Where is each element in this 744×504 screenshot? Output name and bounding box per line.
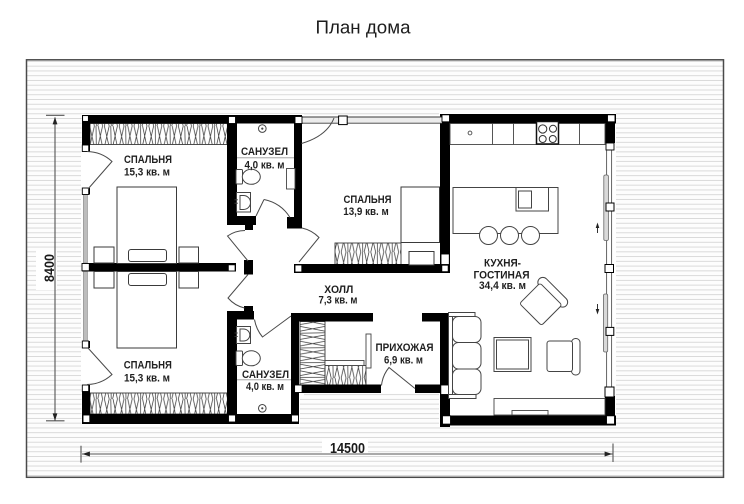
svg-text:8400: 8400 <box>41 254 57 282</box>
svg-text:13,9 кв. м: 13,9 кв. м <box>343 206 389 218</box>
svg-text:4,0 кв. м: 4,0 кв. м <box>246 381 284 393</box>
svg-text:4,0 кв. м: 4,0 кв. м <box>245 159 285 171</box>
svg-text:15,3 кв. м: 15,3 кв. м <box>124 167 170 179</box>
svg-text:34,4 кв. м: 34,4 кв. м <box>479 280 526 292</box>
svg-text:САНУЗЕЛ: САНУЗЕЛ <box>241 146 288 158</box>
svg-text:План дома: План дома <box>316 18 412 38</box>
svg-text:6,9 кв. м: 6,9 кв. м <box>384 354 423 366</box>
svg-text:САНУЗЕЛ: САНУЗЕЛ <box>242 369 289 381</box>
svg-text:14500: 14500 <box>330 440 365 457</box>
svg-text:КУХНЯ-: КУХНЯ- <box>484 258 521 270</box>
svg-text:15,3 кв. м: 15,3 кв. м <box>124 372 170 384</box>
svg-text:ПРИХОЖАЯ: ПРИХОЖАЯ <box>376 342 434 354</box>
svg-text:СПАЛЬНЯ: СПАЛЬНЯ <box>124 154 172 166</box>
svg-text:СПАЛЬНЯ: СПАЛЬНЯ <box>344 194 392 206</box>
svg-text:СПАЛЬНЯ: СПАЛЬНЯ <box>124 360 172 372</box>
svg-text:7,3 кв. м: 7,3 кв. м <box>319 294 358 306</box>
